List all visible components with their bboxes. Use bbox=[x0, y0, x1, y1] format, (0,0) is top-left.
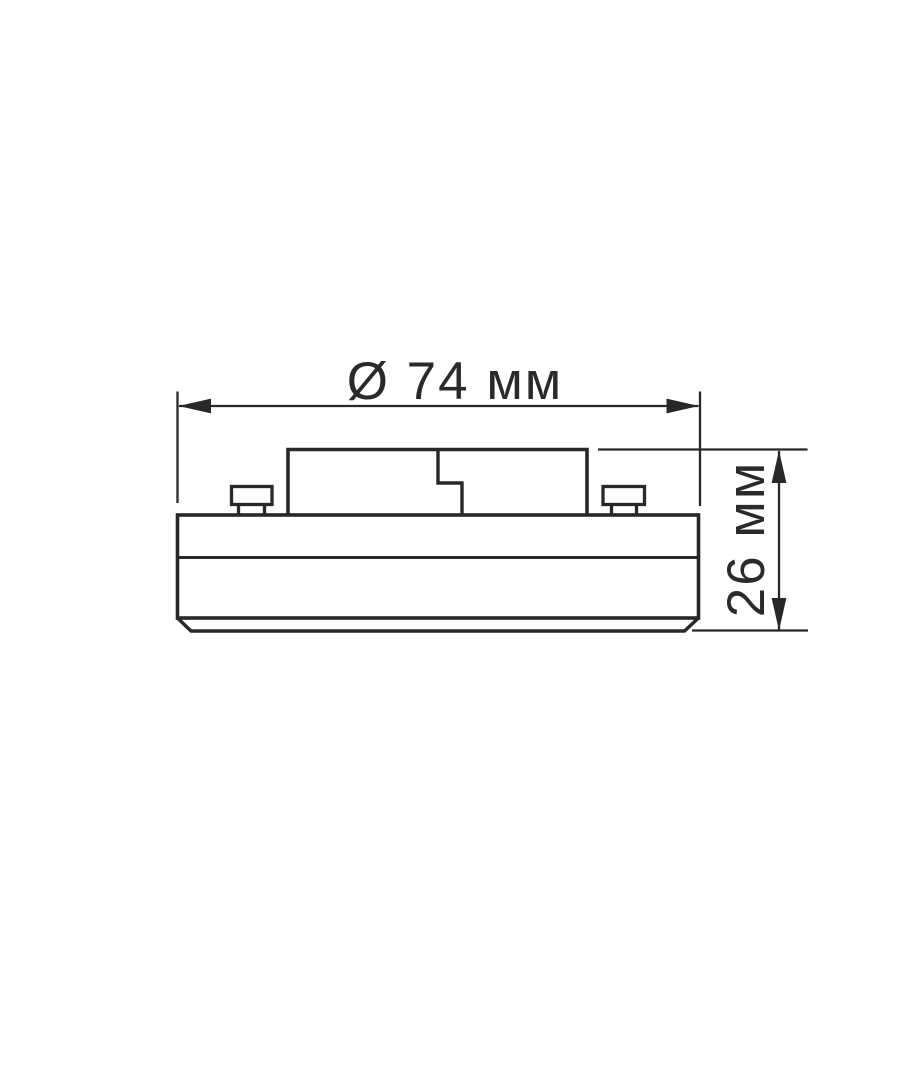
technical-drawing-page: Ø 74 мм 26 мм bbox=[0, 0, 910, 1080]
lamp-outline bbox=[178, 450, 699, 632]
diameter-label: Ø 74 мм bbox=[347, 352, 564, 411]
height-label: 26 мм bbox=[717, 461, 776, 618]
left-pin bbox=[232, 487, 273, 517]
lamp-body bbox=[178, 515, 699, 618]
right-pin bbox=[603, 487, 645, 517]
diameter-right-arrowhead bbox=[667, 399, 700, 414]
lamp-cap-seam-step bbox=[438, 450, 462, 517]
left-pin-head bbox=[232, 487, 273, 505]
height-dimension bbox=[598, 450, 808, 631]
diameter-left-arrowhead bbox=[179, 399, 212, 414]
right-pin-head bbox=[603, 487, 645, 505]
lamp-diffuser-lip bbox=[178, 618, 699, 631]
lamp-dimension-diagram: Ø 74 мм 26 мм bbox=[0, 0, 910, 1080]
